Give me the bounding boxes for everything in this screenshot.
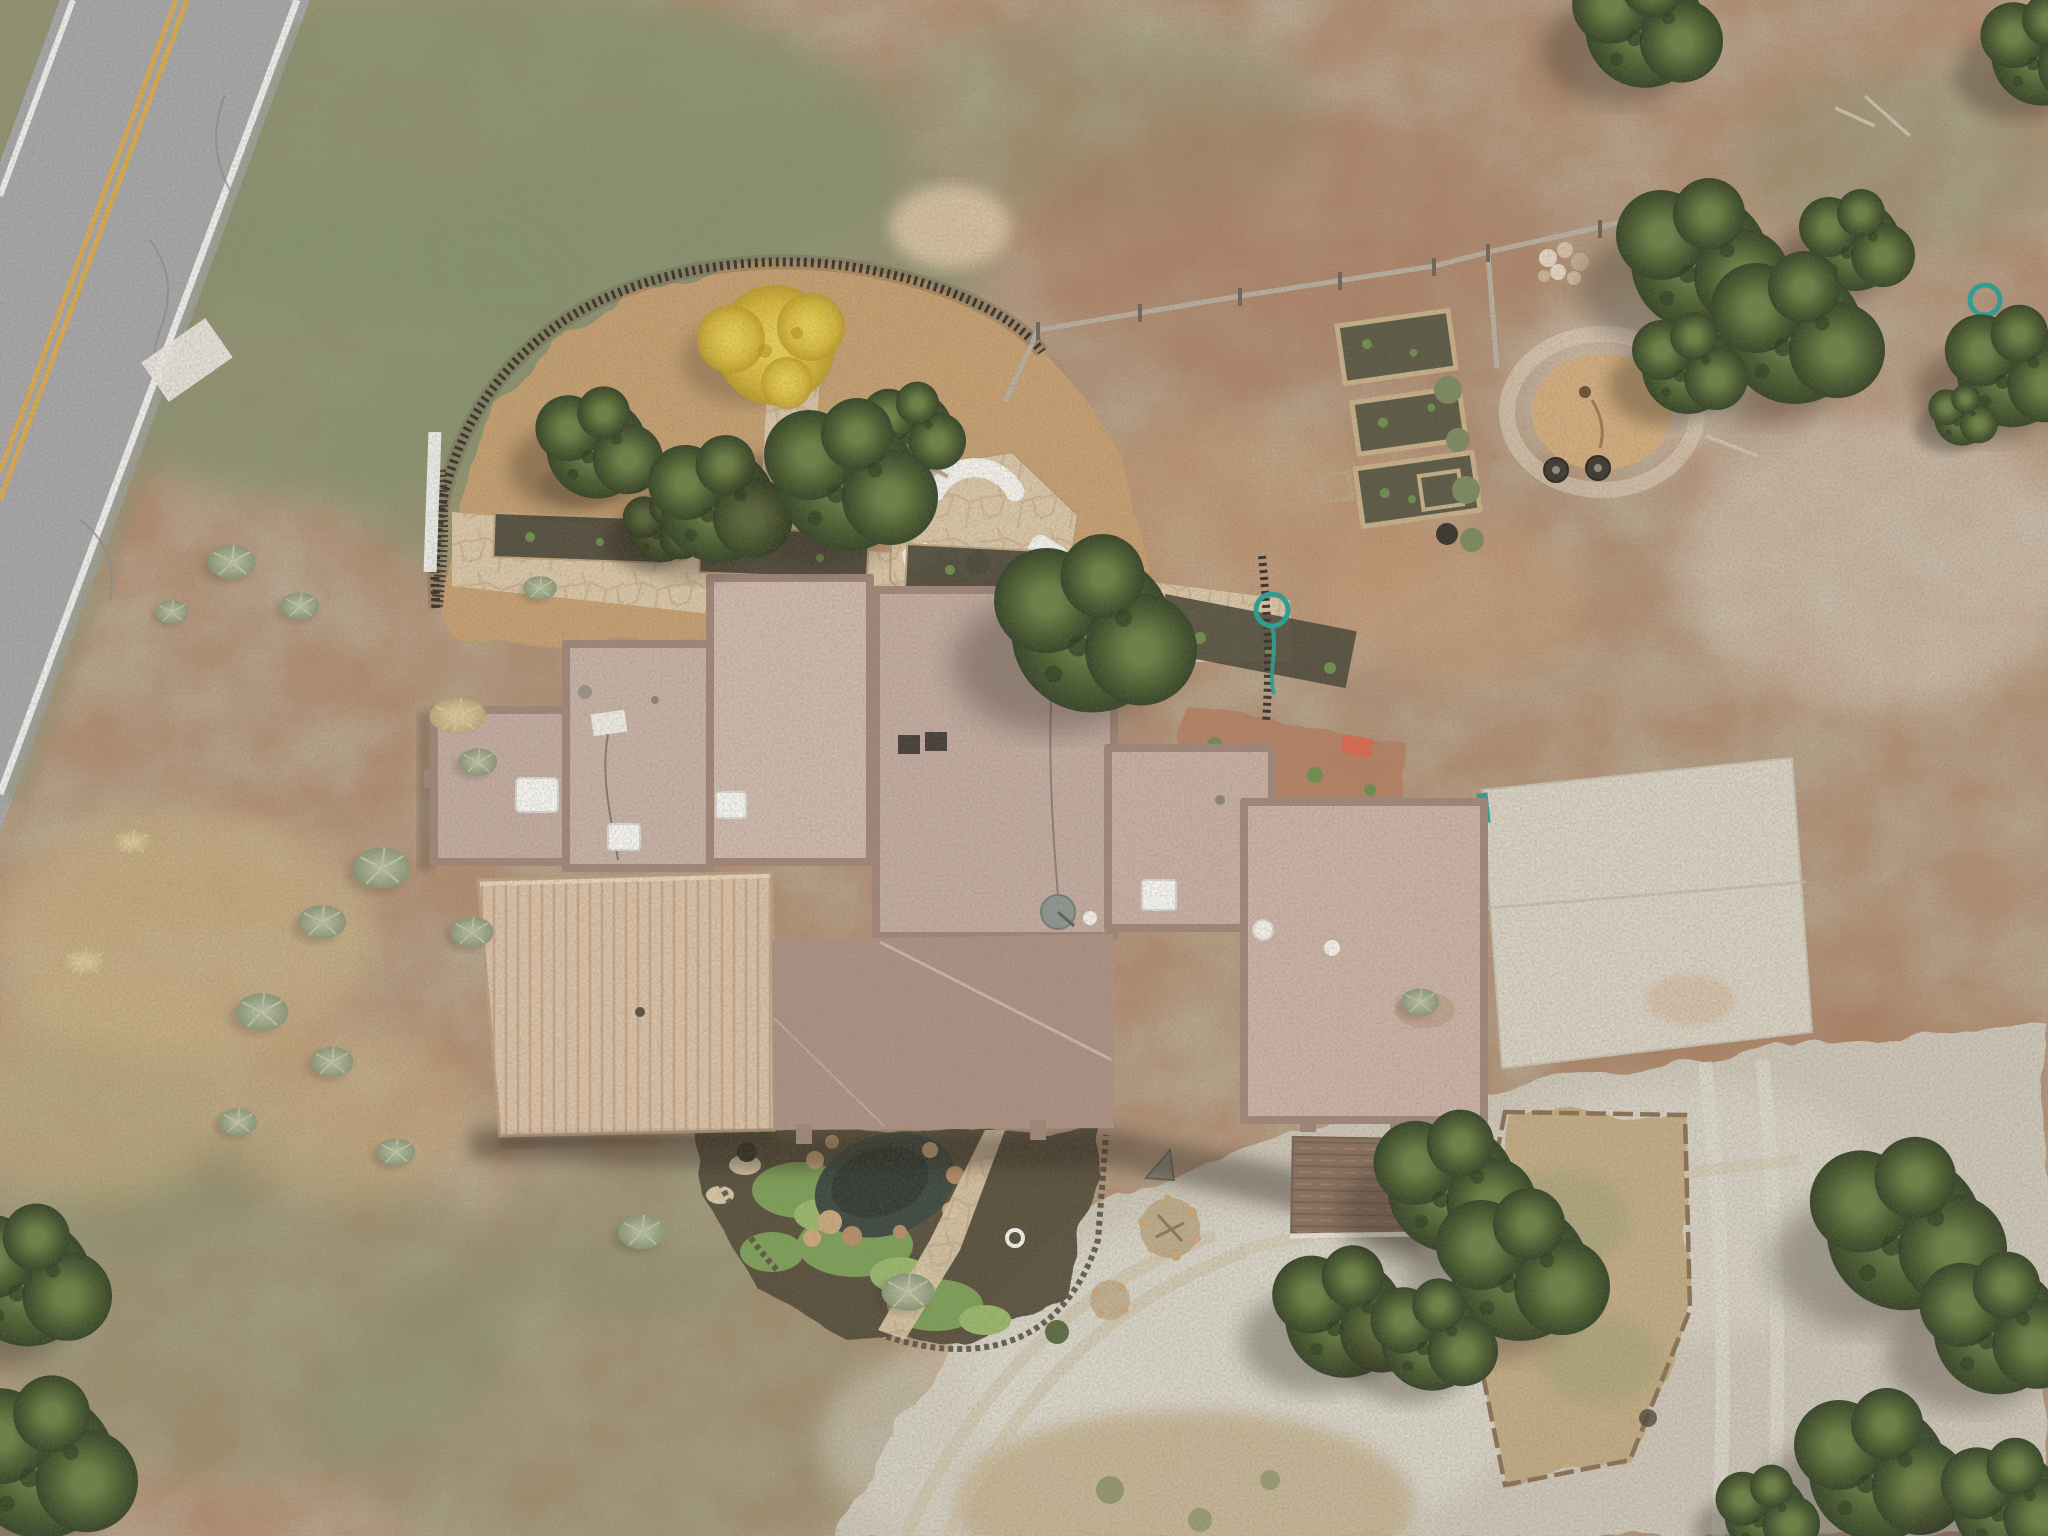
aerial-photo-stage <box>0 0 2048 1536</box>
aerial-photo <box>0 0 2048 1536</box>
film-grain <box>0 0 2048 1536</box>
